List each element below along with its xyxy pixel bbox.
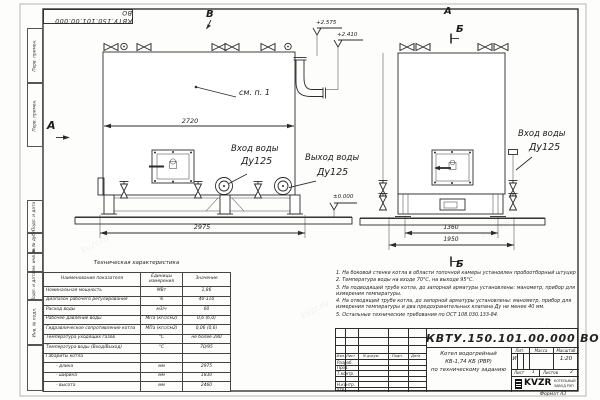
view-b-arrow xyxy=(207,20,212,29)
sheets-label: Листов xyxy=(543,371,558,375)
outlet-dn: Ду125 xyxy=(317,168,348,178)
dim-2720-text: 2720 xyxy=(168,118,212,125)
dim-2975-text: 2975 xyxy=(177,224,227,231)
inlet-left-dn: Ду125 xyxy=(241,157,272,167)
table-row: Номинальная мощностьМВт1,86 xyxy=(44,287,231,297)
col-list: Лист xyxy=(346,355,355,359)
note-item: 5. Остальные технические требования по О… xyxy=(336,312,586,318)
dim-1950-text: 1950 xyxy=(431,237,471,243)
sheet-value: 1 xyxy=(532,371,535,376)
title-block: КВТУ.150.101.00.000 ВО Котел водогрейный… xyxy=(335,328,578,391)
mass-label: Масса xyxy=(529,349,553,353)
code-stamp: КВТУ.150.101.00.000 ВО xyxy=(43,9,133,24)
strip-box-vzam: Взам. инв. № xyxy=(27,253,43,272)
col-data: Дата xyxy=(411,355,420,359)
table-row: Габариты котла xyxy=(44,353,231,363)
table-row: Гидравлическое сопротивление котлаМПа (к… xyxy=(44,325,231,335)
table-row: - высотамм2460 xyxy=(44,382,231,392)
base-frame xyxy=(395,194,506,217)
tech-col-units: Единицы измерения xyxy=(141,273,183,287)
view-a-label: А xyxy=(444,7,452,17)
table-row: Диапазон рабочего регулирования%40-110 xyxy=(44,296,231,306)
ground-hatch-left xyxy=(75,217,352,224)
row-razrab: Разраб. xyxy=(337,361,353,365)
elevation-marks xyxy=(313,28,363,217)
view-b-label: В xyxy=(206,10,214,20)
logo-sub1: КОТЕЛЬНЫЙ xyxy=(554,380,576,383)
section-b-bottom-label: Б xyxy=(456,260,464,270)
table-row: Расход водым3/ч60 xyxy=(44,306,231,316)
lit-value: И xyxy=(513,357,517,363)
col-doc: N докум. xyxy=(363,355,380,359)
strip-box-podp2: Подп. и дата xyxy=(27,272,43,300)
section-mark-top xyxy=(451,34,459,44)
row-utv: Утв. xyxy=(337,388,345,392)
front-view xyxy=(360,34,545,267)
notes-block: 1. На боковой стенке котла в области топ… xyxy=(336,270,586,319)
section-b-top-label: Б xyxy=(456,25,464,35)
col-izm: Изм. xyxy=(337,355,345,359)
note-item: 1. На боковой стенке котла в области топ… xyxy=(336,270,586,276)
product-name-2: КВ-1,74 КБ (РВР) xyxy=(426,360,511,365)
table-row: - длинамм2975 xyxy=(44,363,231,373)
strip-box-perv1: Перв. примен. xyxy=(27,28,43,83)
elevation-outlet: +2.410 xyxy=(337,33,357,39)
inlet-right-dn: Ду125 xyxy=(529,143,560,153)
outlet-flange xyxy=(275,178,292,195)
elevation-ground: ±0.000 xyxy=(333,195,353,201)
dim-1360-text: 1360 xyxy=(431,225,471,231)
note-item: 3. На подводящей трубе котла, до запорно… xyxy=(336,285,586,298)
tech-col-value: Значение xyxy=(183,273,231,287)
row-prov: Пров. xyxy=(337,366,349,370)
tech-table-title: Техническая характеристика xyxy=(43,261,230,267)
kvzr-logo-text: KVZR xyxy=(524,379,551,388)
note-item: 4. На отводящей трубе котла, до запорной… xyxy=(336,298,586,311)
view-a-arrow xyxy=(56,135,70,139)
side-pipe-right xyxy=(509,150,518,211)
sheets-value: 2 xyxy=(570,371,573,376)
side-view xyxy=(56,20,363,238)
product-name-1: Котел водогрейный xyxy=(426,352,511,357)
skid-frame xyxy=(101,195,303,214)
tech-table: Наименование показателя Единицы измерени… xyxy=(43,272,231,392)
outlet-label: Выход воды xyxy=(305,154,359,163)
inlet-left-label: Вход воды xyxy=(231,145,278,154)
scale-label: Масштаб xyxy=(553,349,579,353)
see-note-label: см. п. 1 xyxy=(239,89,270,97)
format-label: Формат А3 xyxy=(540,393,566,398)
lit-label: Лит. xyxy=(511,349,529,353)
table-row: Рабочее давление водыМПа (кгс/см2)0,6 (6… xyxy=(44,315,231,325)
inlet-right-leader xyxy=(516,157,532,170)
logo-sub2: ЗАВОД РЭП xyxy=(554,385,574,388)
table-row: Температура уходящих газов°Сне более 280 xyxy=(44,334,231,344)
inlet-flange xyxy=(216,178,233,195)
front-door xyxy=(432,150,473,185)
flue-outlet xyxy=(294,58,326,99)
scale-value: 1:20 xyxy=(553,357,579,363)
title-designation: КВТУ.150.101.00.000 ВО xyxy=(426,333,579,344)
tech-col-name: Наименование показателя xyxy=(44,273,141,287)
inlet-right-label: Вход воды xyxy=(518,130,565,139)
note-item: 2. Температура воды на входе 70°С, на вы… xyxy=(336,277,586,283)
product-name-3: по техническому заданию xyxy=(426,368,511,373)
strip-box-perv2: Перв. примен. xyxy=(27,83,43,147)
view-a-arrow-label: А xyxy=(47,120,56,131)
table-row: - ширинамм1830 xyxy=(44,372,231,382)
sheet-label: Лист xyxy=(514,371,524,375)
boiler-door xyxy=(149,150,194,183)
kvzr-logo-icon xyxy=(515,379,522,389)
strip-box-empty xyxy=(27,345,43,391)
row-nkontr: Н.контр. xyxy=(337,383,355,387)
side-pipe-left xyxy=(379,53,388,210)
table-row: Температура воды (Вход/Выход)°С70/95 xyxy=(44,344,231,354)
row-tkontr: Т.контр. xyxy=(337,372,354,376)
col-podp: Подп. xyxy=(392,355,403,359)
code-stamp-text: КВТУ.150.101.00.000 ВО xyxy=(44,9,132,25)
elevation-chimney: +2.575 xyxy=(316,21,336,27)
strip-box-inv-podl: Инв. № подл. xyxy=(27,300,43,345)
drawing-sheet: kvzr.ru kvzr.ru kvzr.ru kvzr.ru kvzr.ru … xyxy=(0,0,600,400)
